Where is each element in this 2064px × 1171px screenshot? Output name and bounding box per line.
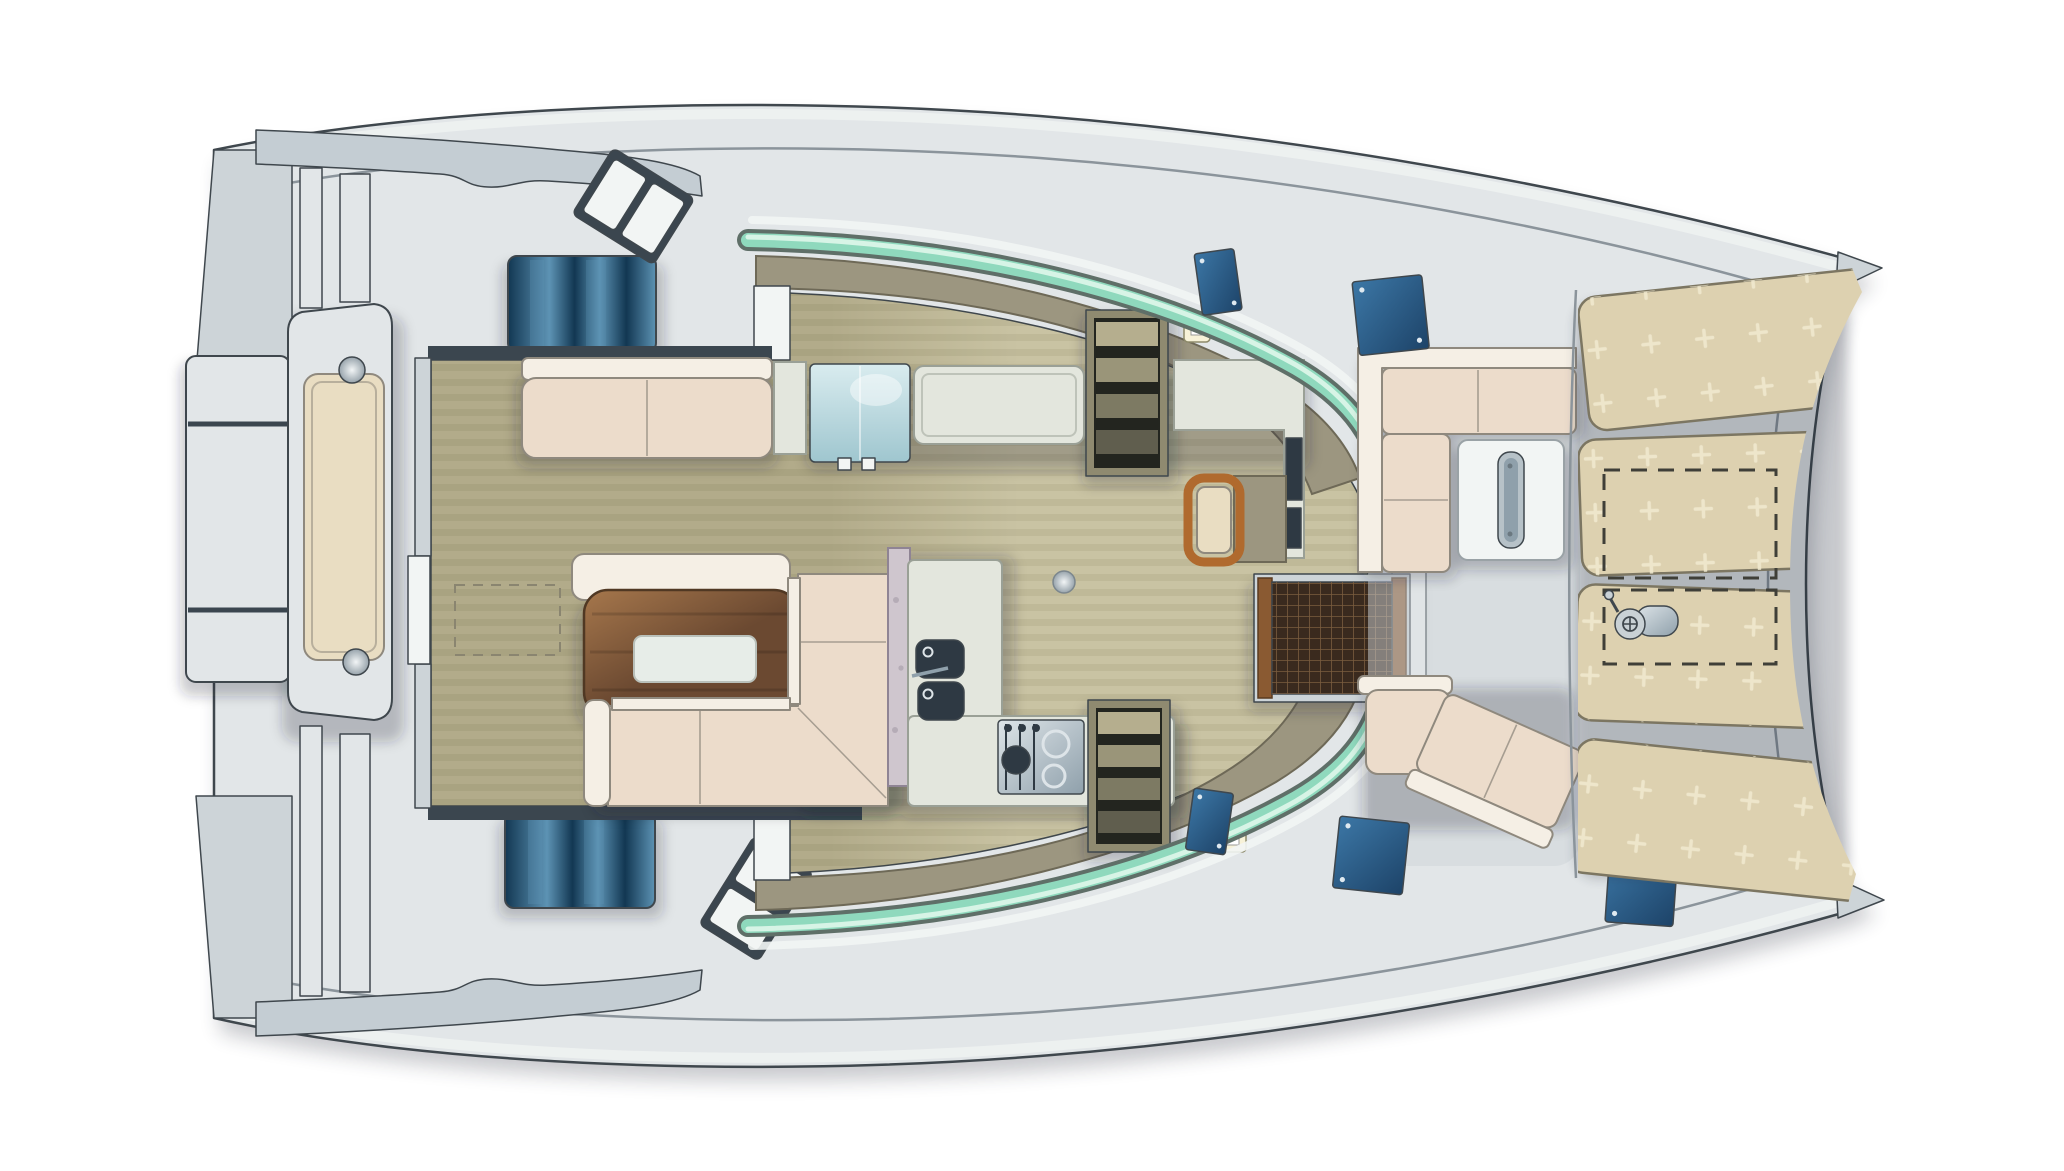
cool-box-foot: [862, 458, 875, 470]
transom-step-top: [196, 150, 292, 372]
side-cabinet: [774, 362, 806, 454]
hatch-lid: [1352, 275, 1429, 356]
grating-rail: [1258, 578, 1272, 698]
salon-aft-wall: [415, 664, 431, 808]
companionway-starboard: Starboard hull companionway stairs: [1088, 700, 1170, 852]
sunpad-tufting: [1578, 425, 2002, 576]
hull-window-port: Port hull window: [508, 256, 656, 352]
windlass-lever-knob: [1605, 591, 1614, 600]
aft-sofa: Salon aft sofa: [522, 358, 772, 458]
stair-tread: [1098, 745, 1160, 767]
window-streak: [584, 816, 604, 904]
av-slot: [1286, 508, 1301, 548]
sofa-back-band: [612, 698, 790, 710]
sofa-seat: [1382, 368, 1576, 434]
module-cushion: [304, 374, 384, 660]
transom-module: Transom lounge module with cushion: [288, 304, 392, 720]
sofa-armrest: [584, 700, 610, 806]
hatch-lid: [1332, 816, 1409, 895]
stove-knob: [1032, 724, 1040, 732]
deck-plan-canvas: Hull and main deck Aft swim platform Tra…: [0, 0, 2064, 1171]
marble-fleck: [892, 727, 898, 733]
deck-hatch: [1332, 816, 1409, 895]
hatch-lid: [1194, 248, 1242, 315]
salon-aft-wall: [415, 358, 431, 556]
deck-fitting: Deck fitting: [1053, 571, 1075, 593]
swim-platform: [186, 356, 290, 682]
companionway-port: Port hull companionway stairs: [1086, 310, 1168, 476]
foredeck: Foredeck sunpads Anchor locker outline: [1564, 255, 2008, 915]
sunpad: [1573, 584, 1997, 735]
deck-hatch: [1194, 248, 1242, 315]
forward-table: Forward cockpit table: [1458, 440, 1564, 560]
stove: Galley stove: [998, 720, 1084, 794]
cool-box-foot: [838, 458, 851, 470]
sunpad-tufting: [1573, 584, 1997, 735]
aft-counter: Galley counter: [914, 366, 1084, 444]
module-bolt: [339, 357, 365, 383]
dining-group: Salon dining table: [572, 554, 798, 716]
pot: [1002, 746, 1030, 774]
av-slot: [1286, 438, 1302, 500]
cool-box: Glass-front cooler: [810, 364, 910, 470]
roof-post: [300, 726, 322, 996]
table-tray: [634, 636, 756, 682]
hull-window-starboard: Starboard hull window: [505, 812, 655, 908]
marble-fleck: [898, 665, 903, 670]
table-screw: [1508, 464, 1513, 469]
deck-hatch: [1352, 275, 1429, 356]
counter-top: [914, 366, 1084, 444]
table-handle: [1504, 458, 1518, 542]
forward-cockpit: Forward cockpit Forward cockpit sofa For…: [1358, 348, 1589, 866]
stair-tread: [1096, 322, 1158, 346]
aft-door-sill: [408, 556, 430, 664]
table-screw: [1508, 532, 1513, 537]
sofa-back: [522, 358, 772, 380]
stove-knob: [1004, 724, 1012, 732]
stair-tread: [1098, 712, 1160, 734]
sunpad: [1578, 425, 2002, 576]
catamaran-deck-plan: Hull and main deck Aft swim platform Tra…: [0, 0, 2064, 1171]
nav-stool-cushion: [1197, 487, 1231, 553]
sofa-back-band: [788, 578, 800, 704]
stair-tread: [1098, 778, 1160, 800]
sofa-seat: [1382, 434, 1450, 572]
glass-highlight: [850, 374, 902, 406]
sink-bowl: [918, 682, 964, 720]
stair-tread: [1098, 811, 1160, 833]
stair-tread: [1096, 430, 1158, 454]
deck-hatch: [1185, 788, 1233, 855]
transom-step-bottom: [196, 796, 292, 1018]
roof-post: [340, 734, 370, 992]
stair-tread: [1096, 358, 1158, 382]
roof-post: [340, 174, 370, 302]
roof-post: [300, 168, 322, 308]
stair-tread: [1096, 394, 1158, 418]
marble-fleck: [893, 597, 899, 603]
window-streak: [586, 260, 606, 348]
module-bolt: [343, 649, 369, 675]
window-streak: [530, 260, 544, 348]
hull-window: [505, 812, 655, 908]
window-streak: [528, 816, 542, 904]
stove-knob: [1018, 724, 1026, 732]
hatch-lid: [1185, 788, 1233, 855]
